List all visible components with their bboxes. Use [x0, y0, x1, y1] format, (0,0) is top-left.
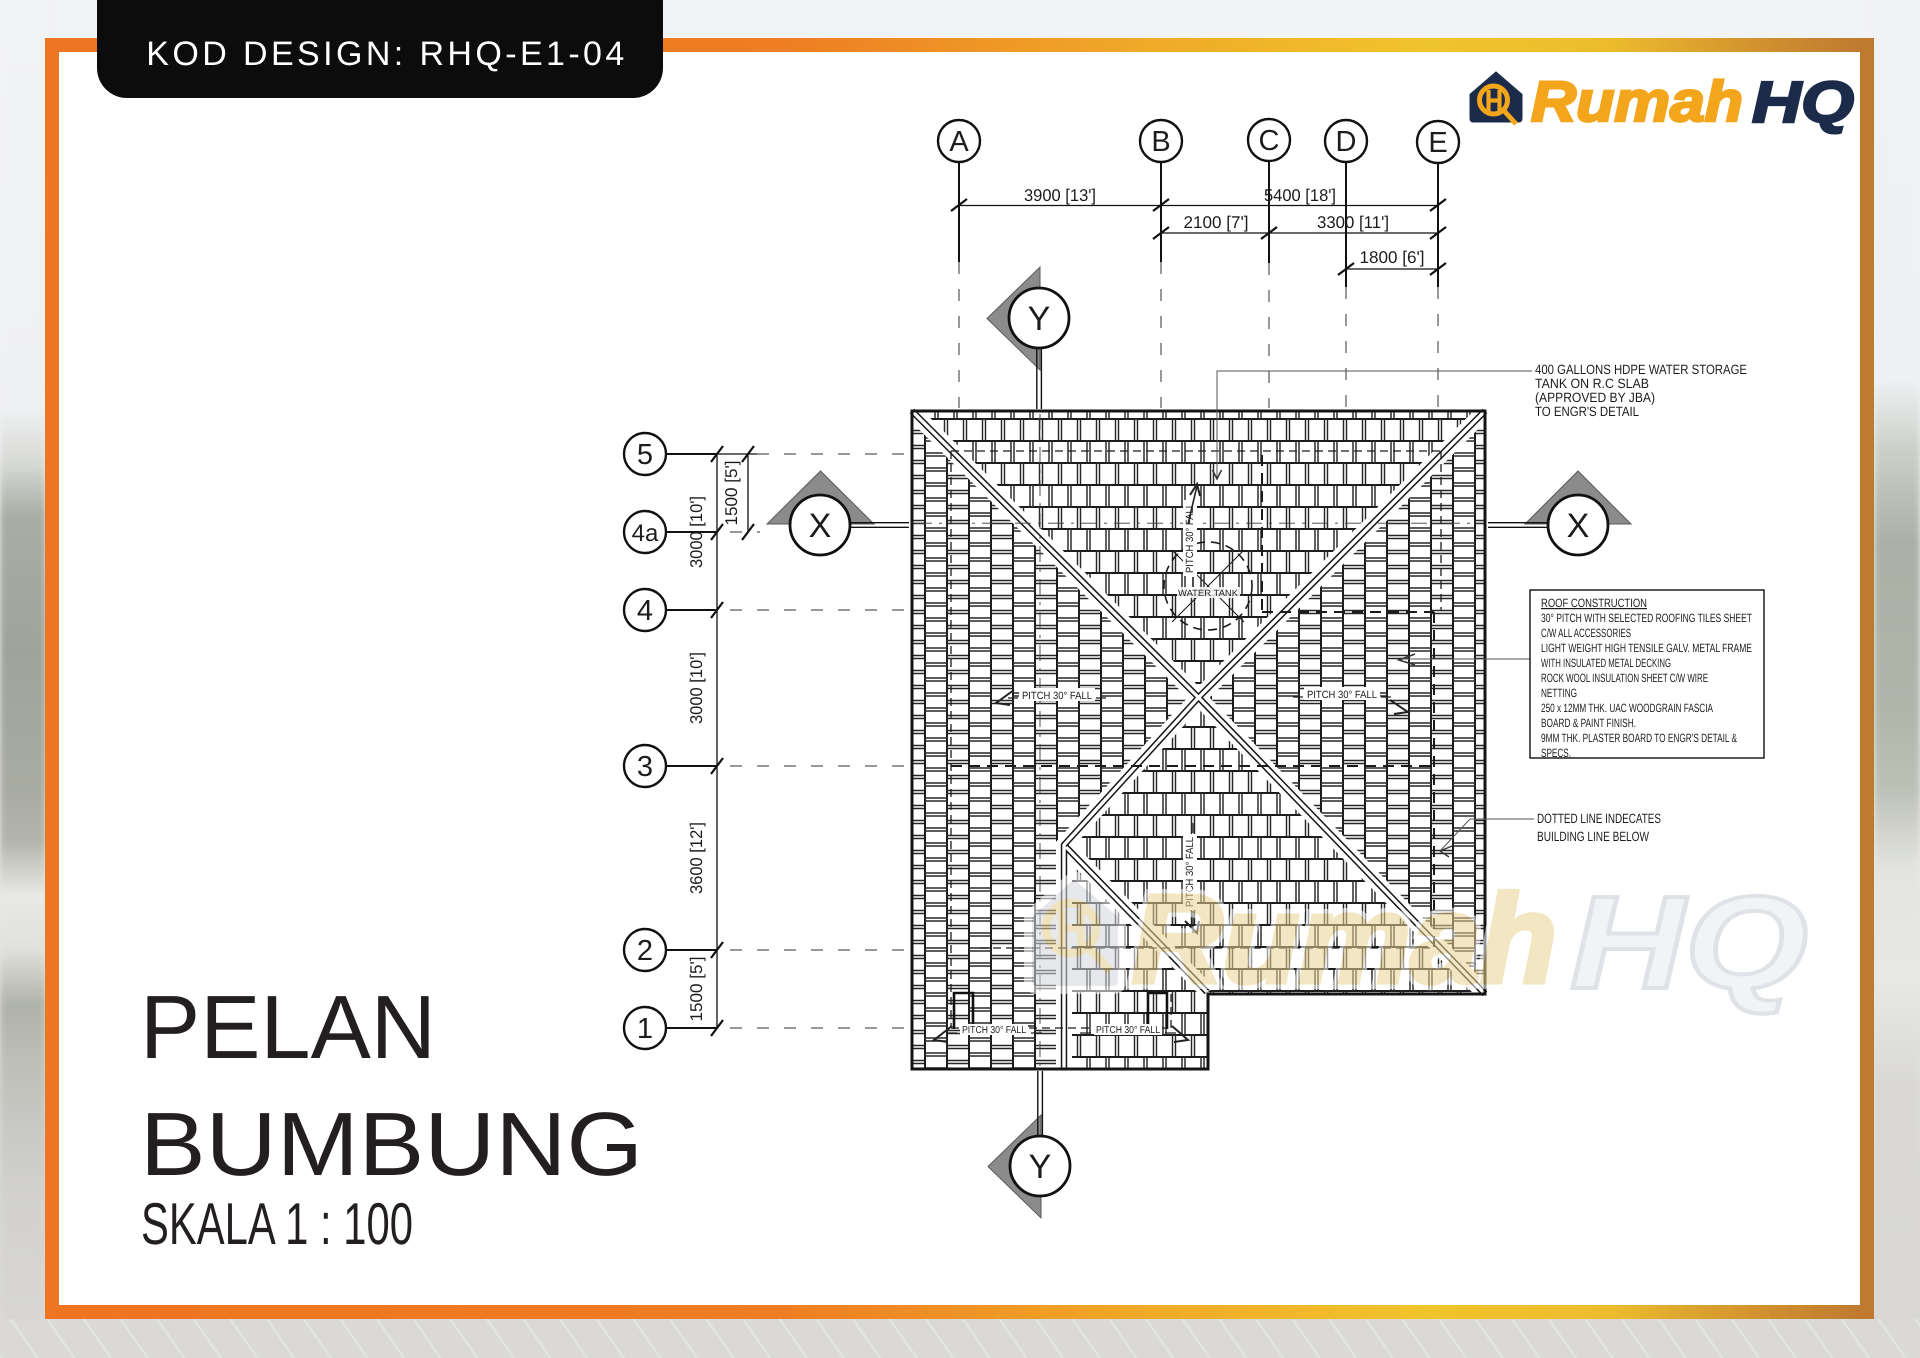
svg-text:PITCH 30° FALL: PITCH 30° FALL [1307, 689, 1377, 701]
svg-text:ROOF CONSTRUCTION: ROOF CONSTRUCTION [1541, 596, 1647, 610]
svg-text:PITCH 30° FALL: PITCH 30° FALL [1096, 1025, 1160, 1036]
svg-text:C/W ALL ACCESSORIES: C/W ALL ACCESSORIES [1541, 626, 1631, 640]
svg-text:PITCH 30° FALL: PITCH 30° FALL [1022, 690, 1092, 702]
svg-text:NETTING: NETTING [1541, 686, 1577, 700]
svg-text:BOARD & PAINT FINISH.: BOARD & PAINT FINISH. [1541, 716, 1636, 730]
svg-text:3000 [10']: 3000 [10'] [687, 652, 706, 724]
svg-text:X: X [809, 507, 832, 545]
svg-text:3900 [13']: 3900 [13'] [1024, 186, 1096, 205]
svg-text:3300 [11']: 3300 [11'] [1317, 213, 1389, 232]
svg-text:SKALA 1 : 100: SKALA 1 : 100 [141, 1191, 413, 1257]
svg-text:HQ: HQ [1752, 70, 1854, 135]
svg-text:ROCK WOOL INSULATION SHEET C/W: ROCK WOOL INSULATION SHEET C/W WIRE [1541, 671, 1708, 685]
svg-text:BUMBUNG: BUMBUNG [140, 1095, 643, 1195]
svg-text:Y: Y [1028, 300, 1051, 338]
svg-text:LIGHT WEIGHT HIGH TENSILE GALV: LIGHT WEIGHT HIGH TENSILE GALV. METAL FR… [1541, 641, 1752, 655]
svg-text:3600 [12']: 3600 [12'] [687, 822, 706, 894]
svg-text:Y: Y [1029, 1148, 1052, 1186]
svg-text:TANK ON R.C SLAB: TANK ON R.C SLAB [1535, 376, 1649, 391]
svg-text:E: E [1428, 127, 1447, 159]
svg-text:Rumah: Rumah [1132, 870, 1557, 1009]
svg-text:PELAN: PELAN [140, 978, 436, 1078]
svg-text:5: 5 [637, 439, 653, 471]
svg-text:1: 1 [637, 1013, 653, 1045]
svg-text:1500 [5']: 1500 [5'] [722, 461, 741, 526]
svg-text:TO ENGR'S DETAIL: TO ENGR'S DETAIL [1535, 404, 1639, 419]
svg-text:2100 [7']: 2100 [7'] [1184, 213, 1249, 232]
svg-text:C: C [1259, 125, 1280, 157]
svg-text:3: 3 [637, 751, 653, 783]
svg-text:D: D [1336, 126, 1357, 158]
svg-text:250 x 12MM THK. UAC WOODGRAIN: 250 x 12MM THK. UAC WOODGRAIN FASCIA [1541, 701, 1713, 715]
svg-text:3000 [10']: 3000 [10'] [687, 496, 706, 568]
svg-text:HQ: HQ [1570, 869, 1808, 1016]
svg-text:X: X [1567, 507, 1590, 545]
svg-text:WATER TANK: WATER TANK [1178, 588, 1238, 598]
svg-text:WITH INSULATED METAL DECKING: WITH INSULATED METAL DECKING [1541, 656, 1671, 670]
svg-text:30° PITCH WITH SELECTED ROOFIN: 30° PITCH WITH SELECTED ROOFING TILES SH… [1541, 611, 1752, 625]
svg-text:SPECS.: SPECS. [1541, 746, 1571, 760]
svg-text:4: 4 [637, 595, 653, 627]
svg-text:1500 [5']: 1500 [5'] [687, 957, 706, 1022]
svg-text:400 GALLONS HDPE WATER STORAGE: 400 GALLONS HDPE WATER STORAGE [1535, 362, 1747, 377]
svg-text:1800 [6']: 1800 [6'] [1360, 248, 1425, 267]
svg-text:BUILDING LINE BELOW: BUILDING LINE BELOW [1537, 829, 1649, 844]
svg-text:B: B [1151, 126, 1170, 158]
svg-text:9MM THK. PLASTER BOARD TO ENGR: 9MM THK. PLASTER BOARD TO ENGR'S DETAIL … [1541, 731, 1737, 745]
svg-text:Rumah: Rumah [1531, 70, 1743, 134]
svg-text:DOTTED LINE INDECATES: DOTTED LINE INDECATES [1537, 811, 1661, 826]
svg-text:4a: 4a [632, 520, 659, 547]
svg-text:PITCH 30° FALL: PITCH 30° FALL [962, 1025, 1026, 1036]
svg-text:5400 [18']: 5400 [18'] [1264, 186, 1336, 205]
svg-text:2: 2 [637, 935, 653, 967]
svg-text:A: A [949, 126, 969, 158]
svg-text:(APPROVED BY JBA): (APPROVED BY JBA) [1535, 390, 1655, 405]
